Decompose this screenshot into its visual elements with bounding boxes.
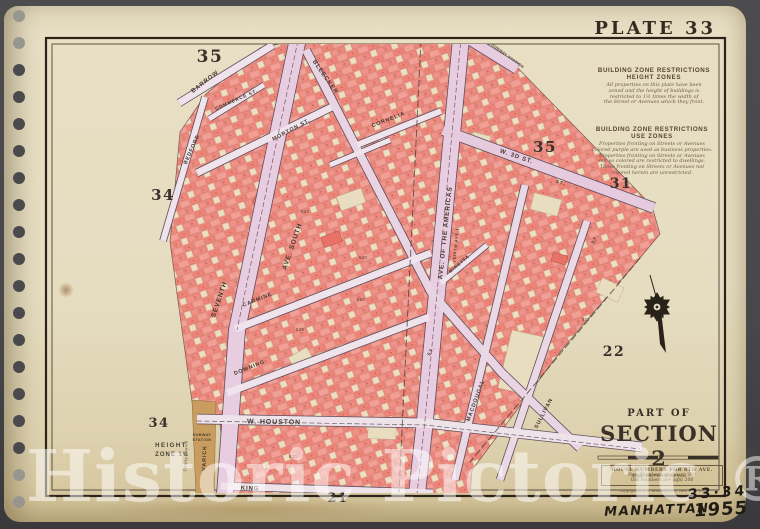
binding-hole (13, 307, 25, 319)
height-zones-note: BUILDING ZONE RESTRICTIONS HEIGHT ZONES … (588, 67, 720, 106)
street-label: KING (241, 486, 260, 493)
adjacent-plate-number: 31 (610, 176, 632, 192)
note-subtitle: HEIGHT ZONES (588, 75, 720, 81)
binding-hole (13, 226, 25, 238)
binding-hole (13, 361, 25, 373)
adjacent-plate-number: 34 (151, 186, 175, 204)
binding-hole (13, 496, 25, 508)
block-number: 527 (582, 317, 591, 322)
binding-hole (13, 10, 25, 22)
binding-hole (13, 64, 25, 76)
note-title: BUILDING ZONE RESTRICTIONS (586, 126, 718, 133)
map-annotation: STATION (193, 438, 212, 442)
note-body: All properties on this plate have beenzo… (588, 83, 720, 106)
binding-hole (13, 280, 25, 292)
handwritten-year: 1955 (693, 498, 748, 522)
plate-title: PLATE 33 (586, 18, 716, 39)
binding-hole (13, 172, 25, 184)
map-annotation: Trinity Church (182, 440, 188, 472)
block-number: 582 (357, 297, 366, 302)
note-line: Old Numbers are light 200 (604, 478, 720, 483)
binding-hole (13, 388, 25, 400)
note-subtitle: USE ZONES (586, 134, 718, 140)
block-number: 820 (289, 454, 298, 459)
adjacent-plate-number: 22 (603, 344, 625, 360)
binding-hole (13, 415, 25, 427)
map-annotation: HEIGHT (155, 443, 187, 449)
street-label: VARICK (202, 445, 209, 471)
street-label: W. HOUSTON (247, 419, 301, 427)
adjacent-plate-number: 21 (327, 491, 348, 506)
binding-holes (13, 10, 25, 508)
map-annotation: SUBWAY (193, 433, 212, 437)
binding-hole (13, 469, 25, 481)
adjacent-plate-number: 35 (197, 47, 224, 67)
note-title: BUILDING ZONE RESTRICTIONS (588, 67, 720, 74)
note-body: Properties fronting on Streets or Avenue… (586, 142, 718, 177)
binding-hole (13, 199, 25, 211)
binding-hole (13, 442, 25, 454)
binding-hole (13, 37, 25, 49)
binding-hole (13, 145, 25, 157)
block-number: 543 (301, 209, 310, 214)
note-line: the Street or Avenues which they front. (588, 100, 720, 106)
adjacent-plate-number: 35 (533, 138, 557, 156)
house-numbers-box: HOUSE NUMBERS FOR 6TH AVE.New Numbers ar… (601, 465, 723, 486)
part-of-label: PART OF (592, 408, 726, 419)
compass-needle (657, 311, 666, 353)
binding-hole (13, 91, 25, 103)
block-number: 529 (296, 327, 305, 332)
adjacent-plate-number: 34 (148, 416, 169, 431)
photo-backdrop: 35343531223421 BARROWCOMMERCE ST.BEDFORD… (0, 0, 760, 529)
map-drawing (163, 24, 660, 498)
use-zones-note: BUILDING ZONE RESTRICTIONS USE ZONES Pro… (586, 126, 718, 177)
note-line: colored herein are unrestricted. (586, 171, 718, 177)
binding-hole (13, 253, 25, 265)
block-number: 540 (359, 255, 368, 260)
binding-hole (13, 334, 25, 346)
compass-rose (644, 275, 670, 353)
section-name: SECTION 2 (592, 421, 726, 471)
binding-hole (13, 118, 25, 130)
